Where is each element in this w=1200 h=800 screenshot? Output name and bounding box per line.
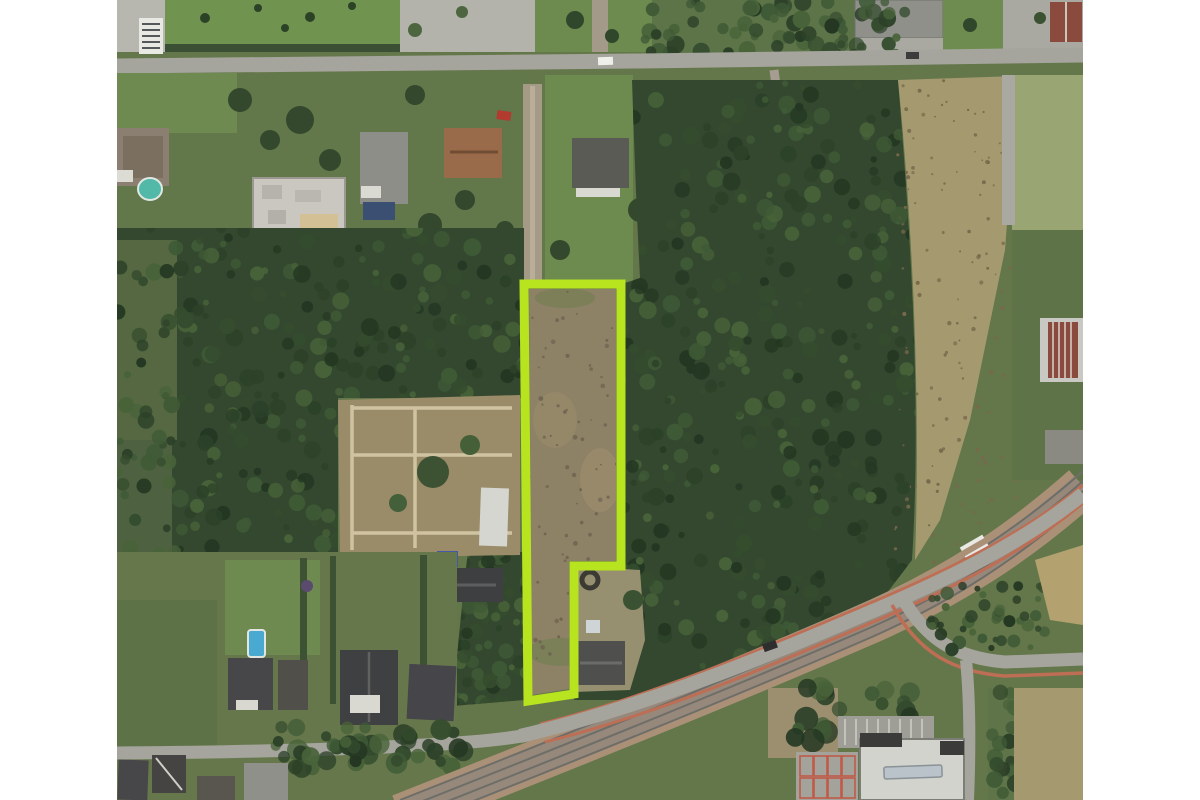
notch-clearing [574,566,645,692]
white-canopy [479,488,509,547]
pool-teal [138,178,162,200]
white-shed [586,620,600,633]
trampoline [301,580,313,592]
van-on-road [598,57,613,66]
skylight [884,765,942,779]
screenshot-root [0,0,1200,800]
satellite-map[interactable] [0,0,1200,800]
pool-blue [248,630,265,657]
car-on-road [906,52,919,59]
